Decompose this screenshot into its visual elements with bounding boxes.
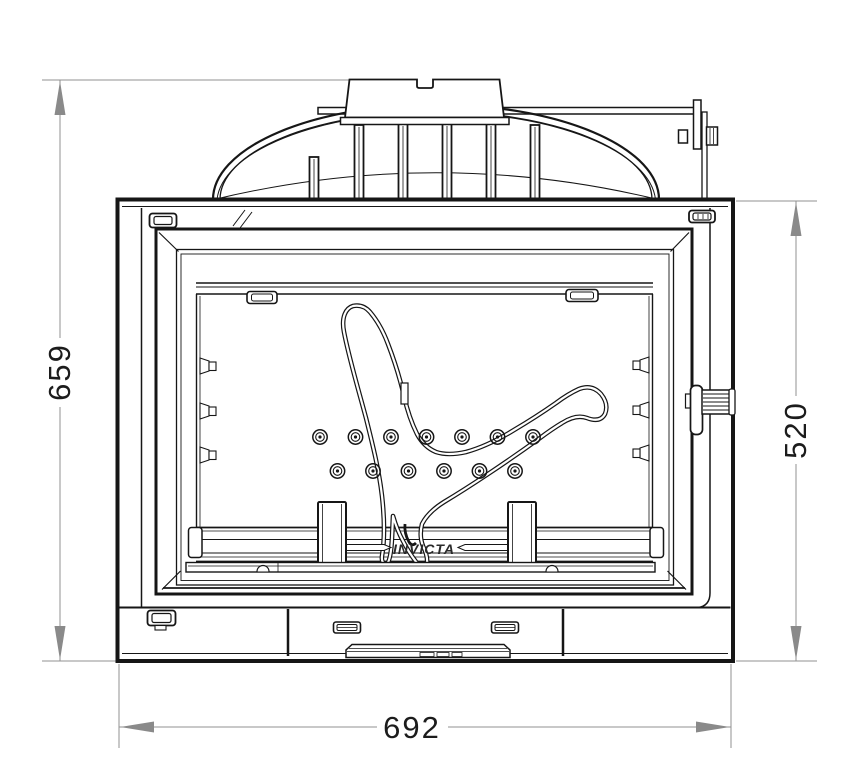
brand-label: INVICTA (393, 541, 455, 557)
overall-width-label: 692 (383, 710, 441, 745)
technical-drawing-page: 659 520 692 (0, 0, 864, 776)
handle-end-cap (729, 389, 735, 415)
arrow-up-icon (791, 202, 802, 236)
door-latch-bar (691, 386, 703, 435)
rail-end-cap-left (189, 528, 203, 558)
arrow-down-icon (55, 626, 66, 660)
damper-vertical-rod (702, 112, 707, 199)
arrow-down-icon (791, 626, 802, 660)
flue-collar (341, 80, 510, 125)
flue-collar-flange (341, 118, 510, 125)
arrow-right-icon (696, 722, 730, 733)
damper-bracket-plate (694, 100, 702, 149)
arrow-up-icon (55, 81, 66, 115)
gasket-splice (401, 383, 408, 404)
heat-exchanger-fins (310, 124, 540, 200)
overall-height-label: 659 (42, 343, 77, 401)
ash-lip (346, 645, 510, 658)
damper-bolt-head (679, 130, 688, 143)
door-bottom-lip (186, 563, 655, 573)
dome-front-edge (214, 173, 658, 200)
arrow-left-icon (120, 722, 154, 733)
fireplace-insert-drawing: 659 520 692 (0, 0, 864, 776)
rail-end-cap-right (650, 528, 664, 558)
fixing-slot-top-right (689, 211, 715, 223)
body-height-label: 520 (778, 401, 813, 459)
damper-nut (707, 127, 718, 145)
